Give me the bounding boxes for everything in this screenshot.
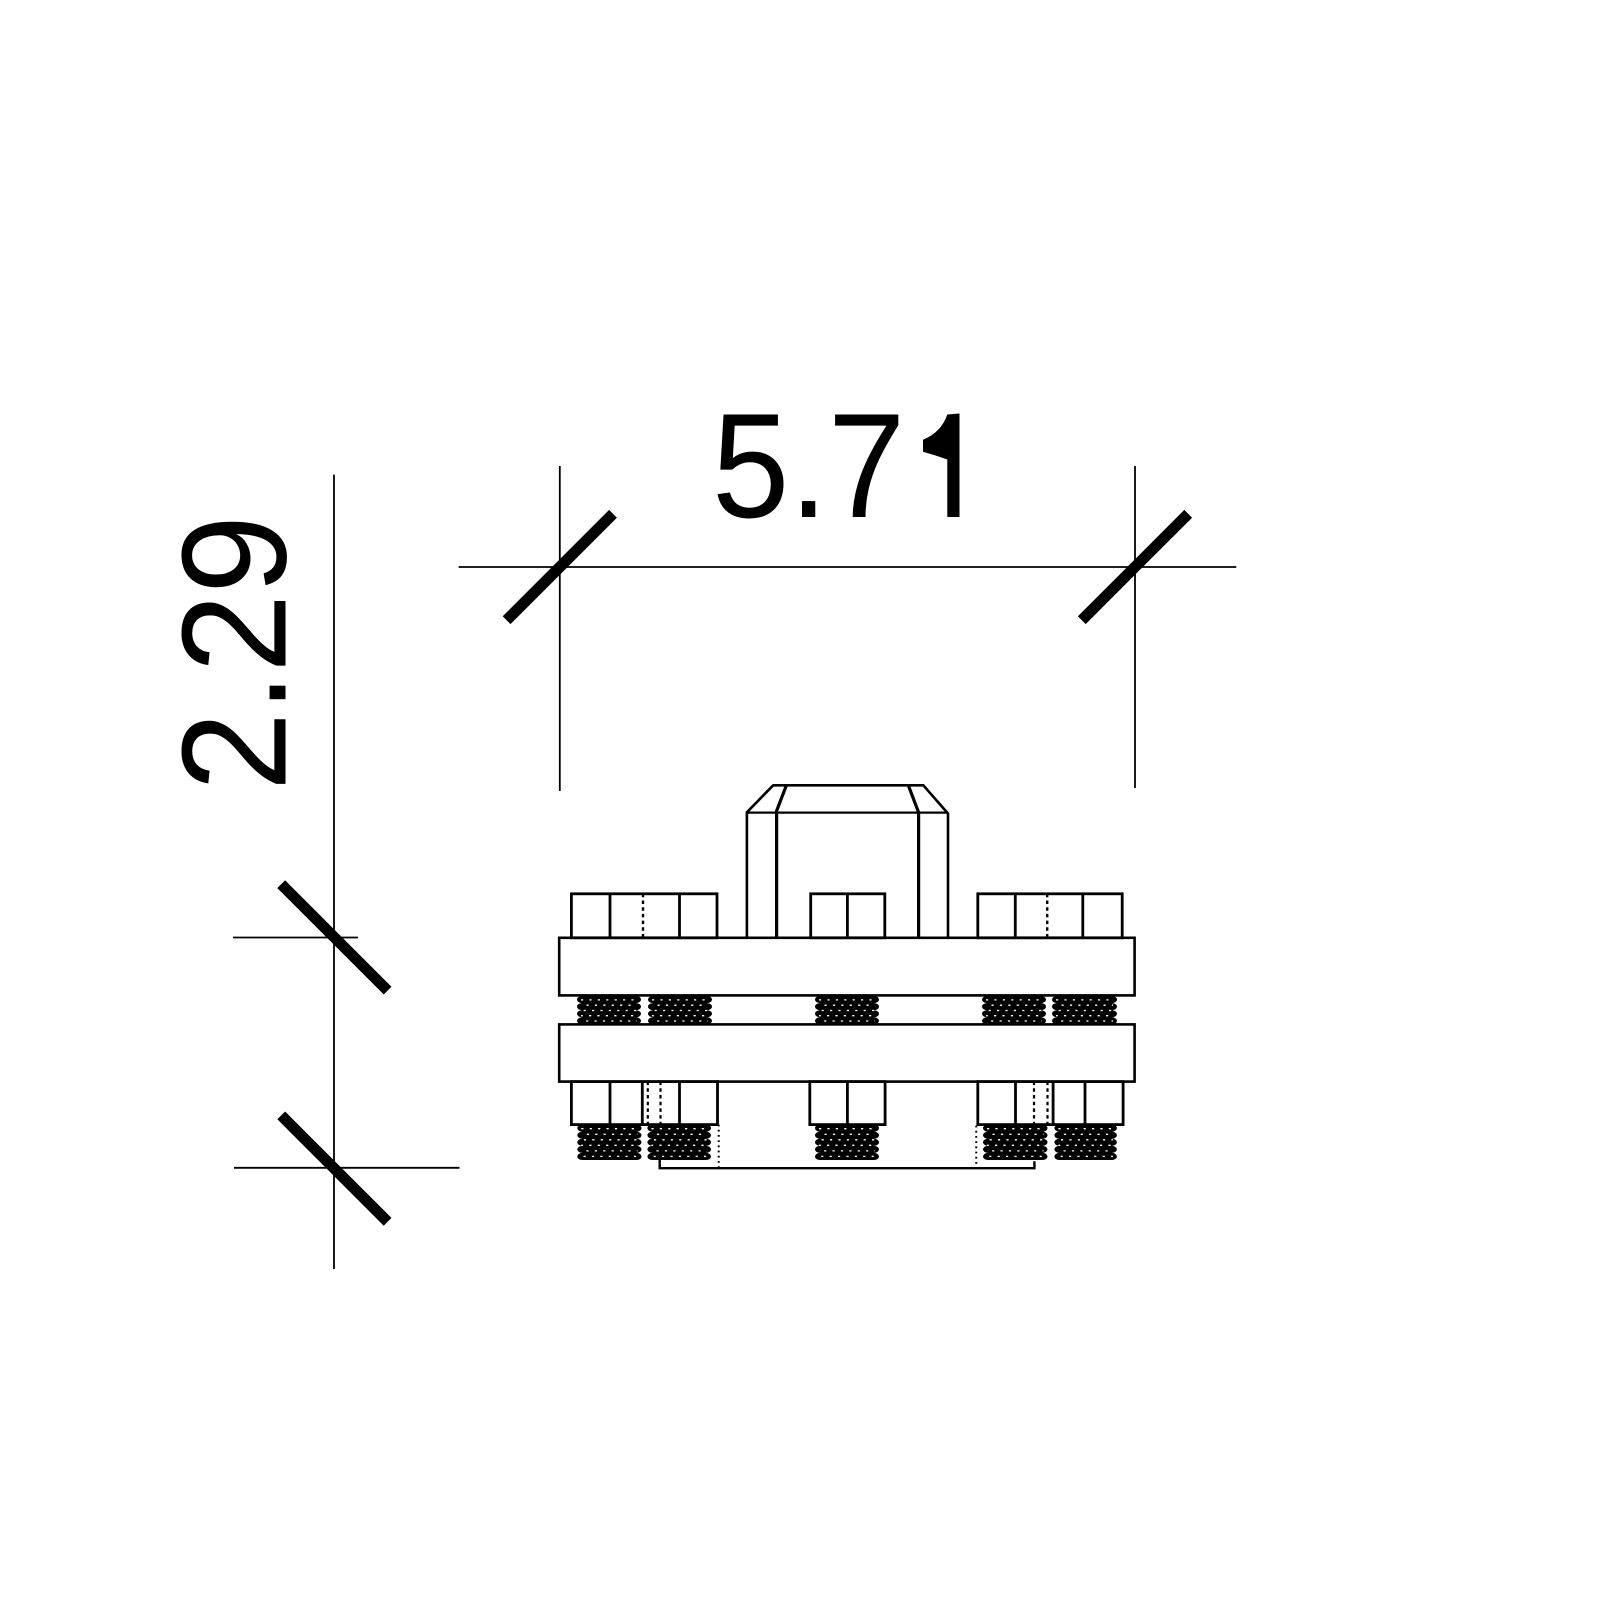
- svg-text:2.29: 2.29: [151, 515, 318, 791]
- svg-text:5.7: 5.7: [712, 382, 905, 549]
